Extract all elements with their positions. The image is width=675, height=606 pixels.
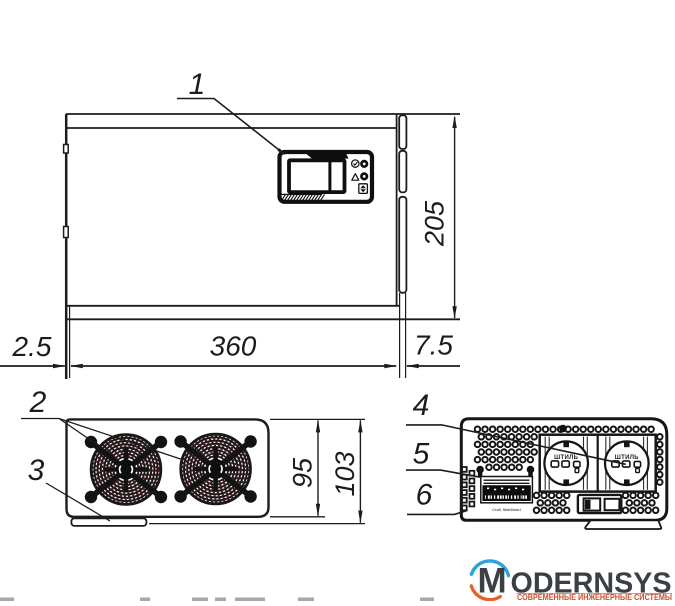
svg-text:2: 2	[29, 386, 47, 419]
svg-text:СОВРЕМЕННЫЕ ИНЖЕНЕРНЫЕ СИСТЕМЫ: СОВРЕМЕННЫЕ ИНЖЕНЕРНЫЕ СИСТЕМЫ	[517, 592, 672, 601]
svg-text:3: 3	[28, 454, 45, 487]
svg-text:360: 360	[210, 331, 257, 362]
svg-text:Стаб. StabSmart: Стаб. StabSmart	[492, 508, 521, 512]
svg-text:5: 5	[413, 438, 430, 471]
svg-text:95: 95	[288, 457, 318, 488]
svg-text:103: 103	[330, 451, 360, 496]
svg-text:7.5: 7.5	[414, 330, 453, 361]
svg-text:1: 1	[189, 68, 206, 101]
svg-text:M: M	[478, 561, 507, 600]
svg-text:4: 4	[413, 389, 430, 422]
svg-text:2.5: 2.5	[12, 331, 52, 362]
svg-text:6: 6	[416, 479, 433, 512]
svg-text:205: 205	[420, 200, 450, 247]
